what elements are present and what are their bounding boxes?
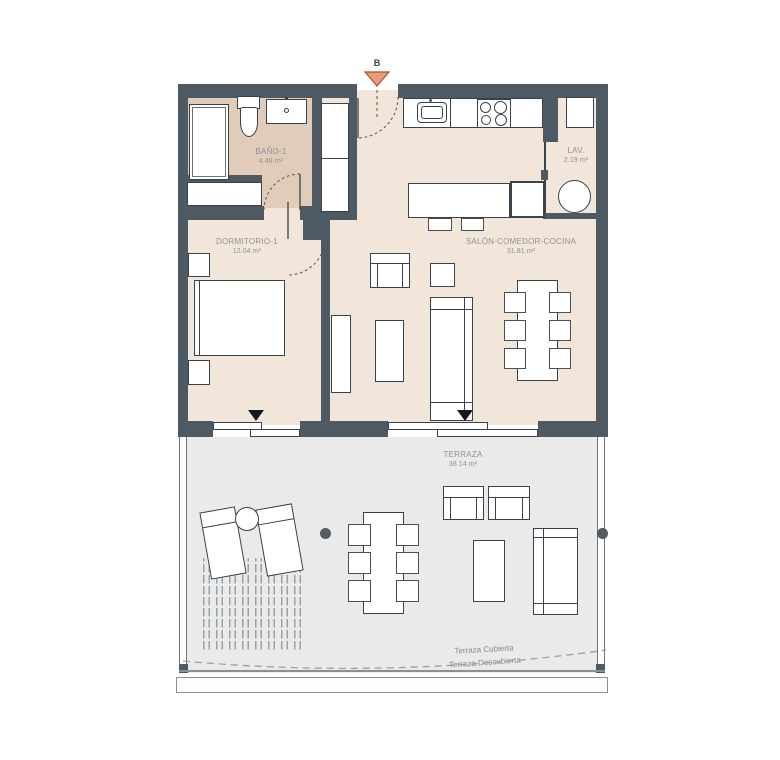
burner bbox=[481, 115, 491, 125]
room-label-bathroom: BAÑO-1 4.48 m² bbox=[221, 147, 321, 166]
terrace-sofa-back bbox=[543, 528, 544, 615]
railing-knob bbox=[597, 528, 608, 539]
wall-bedroom-door-block bbox=[303, 220, 330, 240]
terrace-edge-line bbox=[179, 670, 605, 672]
terrace-chair bbox=[348, 524, 371, 546]
armchair-arm bbox=[402, 263, 403, 288]
burner bbox=[495, 114, 507, 126]
terrace-armchair-arm bbox=[495, 497, 496, 520]
sink-basin bbox=[421, 106, 443, 119]
room-area: 12.04 m² bbox=[197, 247, 297, 257]
wall bbox=[538, 421, 608, 437]
wall bbox=[178, 421, 213, 437]
terrace-armchair-arm bbox=[476, 497, 477, 520]
terrace-railing-right bbox=[597, 437, 605, 669]
bed-headboard bbox=[199, 281, 200, 355]
section-marker-label: B bbox=[365, 58, 389, 68]
terrace-armchair-arm bbox=[522, 497, 523, 520]
laundry-counter bbox=[566, 97, 594, 128]
wall bbox=[178, 84, 357, 98]
wall bbox=[398, 84, 608, 98]
room-label-terrace: TERRAZA 38.14 m² bbox=[403, 450, 523, 469]
sliding-door-panel bbox=[437, 429, 538, 437]
armchair-arm bbox=[377, 263, 378, 288]
room-area: 31.81 m² bbox=[451, 247, 591, 257]
wall-closet-right bbox=[349, 84, 357, 212]
shower-tray bbox=[192, 107, 226, 177]
room-area: 4.48 m² bbox=[221, 157, 321, 167]
wall-bedroom-living bbox=[321, 240, 330, 421]
terrace-chair bbox=[396, 524, 419, 546]
chair bbox=[504, 348, 526, 369]
terrace-railing-left bbox=[179, 437, 187, 669]
room-name: TERRAZA bbox=[403, 450, 523, 460]
washing-machine bbox=[558, 180, 591, 213]
section-marker-icon bbox=[365, 72, 389, 86]
entrance-marker bbox=[248, 410, 264, 421]
terrace-chair bbox=[348, 580, 371, 602]
floor-plan: B BAÑO-1 4.48 m² DORMITORIO-1 12.04 m² S… bbox=[0, 0, 780, 760]
armchair-back bbox=[370, 263, 410, 264]
counter-divider bbox=[450, 99, 451, 127]
room-name: DORMITORIO-1 bbox=[197, 237, 297, 247]
stool bbox=[461, 218, 484, 231]
toilet-bowl bbox=[240, 107, 258, 137]
shower bbox=[189, 104, 229, 180]
room-name: LAV. bbox=[536, 146, 616, 156]
chair bbox=[549, 348, 571, 369]
sink-faucet bbox=[285, 97, 288, 100]
armchair bbox=[370, 253, 410, 288]
side-table bbox=[430, 263, 455, 287]
room-label-living: SALÓN-COMEDOR-COCINA 31.81 m² bbox=[451, 237, 591, 256]
sideboard bbox=[331, 315, 351, 393]
wall bbox=[300, 421, 388, 437]
kitchen-faucet bbox=[429, 99, 432, 102]
terrace-drain bbox=[320, 528, 331, 539]
wall-bathroom-bottom bbox=[187, 206, 264, 220]
room-label-bedroom: DORMITORIO-1 12.04 m² bbox=[197, 237, 297, 256]
chair bbox=[504, 292, 526, 313]
burner bbox=[494, 101, 507, 114]
terrace-chair bbox=[396, 552, 419, 574]
terrace-chair bbox=[396, 580, 419, 602]
nightstand bbox=[188, 360, 210, 385]
sofa-line bbox=[430, 309, 473, 310]
wall-laundry-left bbox=[543, 84, 558, 142]
terrace-fascia bbox=[176, 677, 608, 693]
terrace-sofa bbox=[533, 528, 578, 615]
sofa-back bbox=[464, 297, 465, 421]
wall bbox=[596, 84, 608, 437]
wall bbox=[178, 84, 188, 437]
round-table bbox=[235, 507, 259, 531]
wall-bathroom-door-stub bbox=[300, 206, 312, 220]
coffee-table bbox=[375, 320, 404, 382]
fridge-unit bbox=[510, 181, 545, 218]
room-area: 2.19 m² bbox=[536, 156, 616, 166]
room-area: 38.14 m² bbox=[403, 460, 523, 470]
sliding-door-panel bbox=[250, 429, 300, 437]
lounger-fold bbox=[203, 521, 237, 528]
burner bbox=[480, 102, 491, 113]
terrace-sofa-line bbox=[533, 537, 578, 538]
chair bbox=[549, 292, 571, 313]
chair bbox=[504, 320, 526, 341]
room-label-laundry: LAV. 2.19 m² bbox=[536, 146, 616, 165]
sink-drain bbox=[284, 108, 289, 113]
entrance-marker bbox=[457, 410, 473, 421]
terrace-chair bbox=[348, 552, 371, 574]
closet-shelf bbox=[322, 158, 348, 159]
stool bbox=[428, 218, 452, 231]
laundry-door-pivot bbox=[541, 170, 548, 180]
terrace-armchair-arm bbox=[450, 497, 451, 520]
lounger-fold bbox=[259, 518, 294, 525]
bedroom-wardrobe bbox=[187, 182, 262, 206]
terrace-sofa-line bbox=[533, 603, 578, 604]
wall-laundry-bottom bbox=[543, 213, 596, 219]
kitchen-sink bbox=[417, 102, 447, 123]
terrace-coffee-table bbox=[473, 540, 505, 602]
bed bbox=[194, 280, 285, 356]
nightstand bbox=[188, 253, 210, 277]
kitchen-island bbox=[408, 183, 510, 218]
room-name: SALÓN-COMEDOR-COCINA bbox=[451, 237, 591, 247]
chair bbox=[549, 320, 571, 341]
sofa-line bbox=[430, 402, 473, 403]
room-name: BAÑO-1 bbox=[221, 147, 321, 157]
